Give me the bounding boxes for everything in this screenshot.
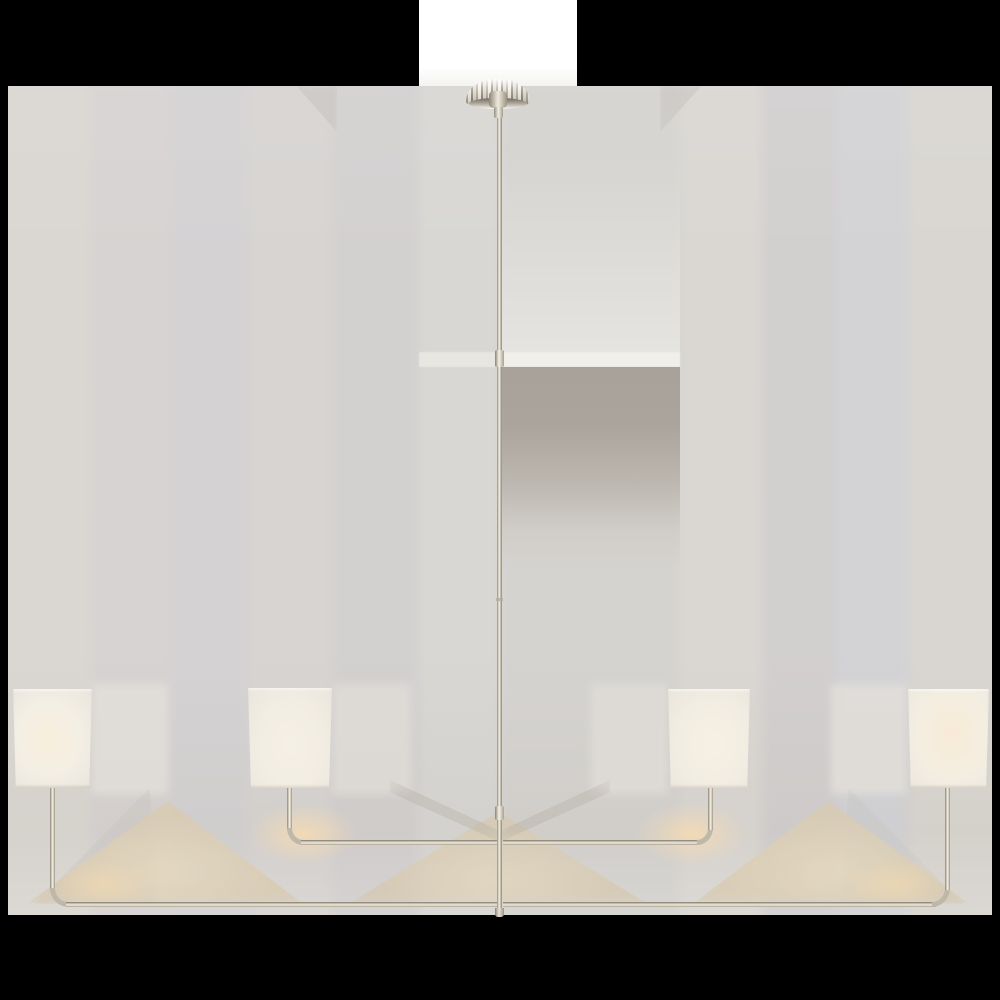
arm-post-inner-left (287, 786, 292, 830)
shade-glow-column-outer-left (92, 684, 168, 794)
warm-glow-bend-inner-left (248, 803, 360, 865)
highlight-stripe-right (500, 352, 680, 367)
shade-glow-column-inner-left (333, 684, 411, 794)
rod-coupling-upper (495, 350, 504, 367)
lamp-shade-outer-left (13, 689, 92, 788)
arm-bar-outer-left (66, 902, 497, 907)
rod-coupling-lower (495, 806, 504, 820)
lamp-shade-inner-right (668, 689, 750, 788)
warm-glow-bend-inner-right (636, 803, 748, 865)
arm-bar-inner-left (301, 840, 497, 845)
arm-post-outer-right (945, 786, 950, 890)
canopy-hub (489, 91, 507, 108)
rod-end-cap (495, 908, 504, 917)
rod-seam-mid (496, 598, 503, 601)
product-image-canvas (0, 0, 1000, 1000)
arm-bar-inner-right (503, 840, 699, 845)
shade-glow-column-inner-right (591, 684, 668, 794)
lamp-shade-outer-right (908, 689, 989, 788)
ceiling-strip (419, 0, 577, 87)
arm-post-outer-left (50, 786, 55, 890)
shade-glow-column-outer-right (831, 684, 906, 794)
lamp-shade-inner-left (248, 688, 332, 788)
center-shadow-block (500, 367, 680, 572)
arm-bar-outer-right (503, 902, 936, 907)
downrod (497, 102, 502, 915)
center-light-column (500, 150, 680, 355)
highlight-stripe-left (419, 352, 500, 367)
stem-collar (494, 107, 503, 118)
arm-post-inner-right (708, 786, 713, 830)
